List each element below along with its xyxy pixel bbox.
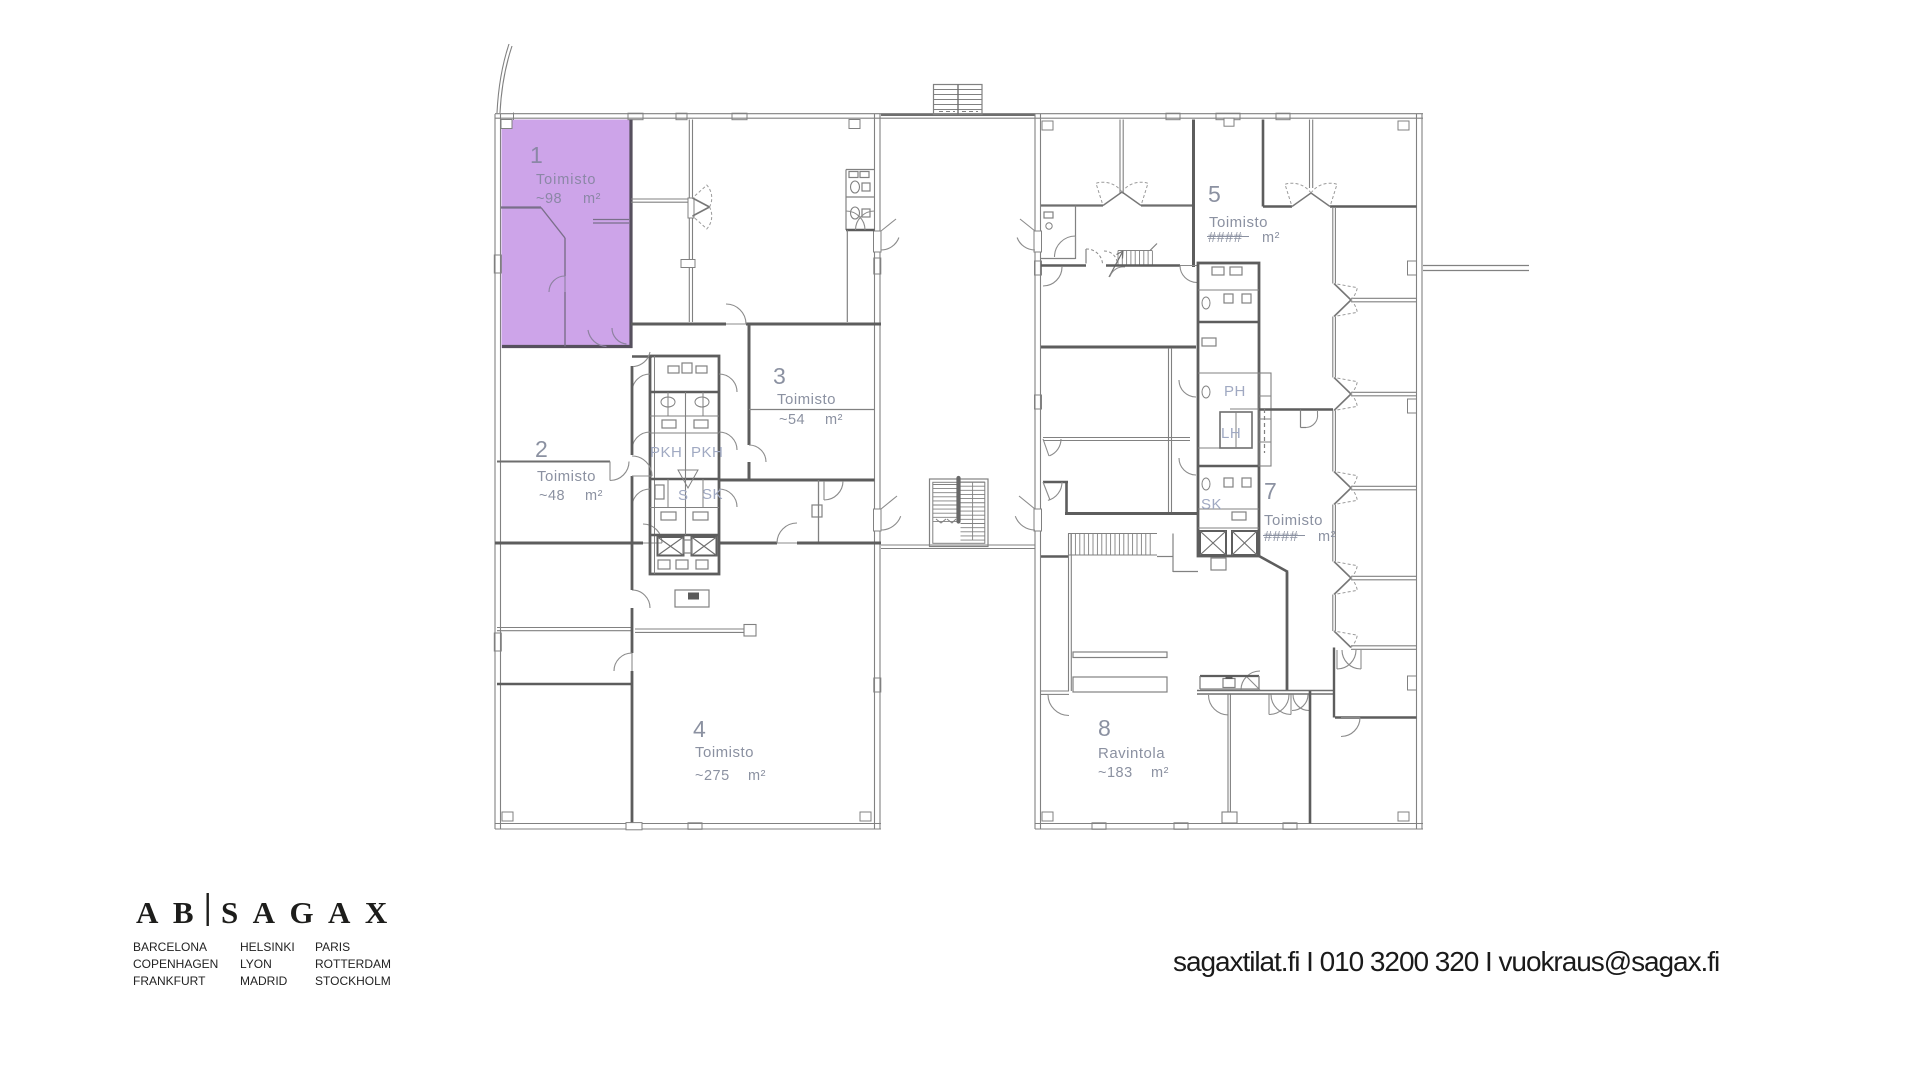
svg-text:sagaxtilat.fi I 010 3200 320 I: sagaxtilat.fi I 010 3200 320 I vuokraus@… (1173, 946, 1719, 977)
svg-text:####: #### (1264, 529, 1298, 545)
svg-text:~98: ~98 (536, 191, 562, 207)
svg-text:~54: ~54 (779, 412, 805, 428)
svg-text:COPENHAGEN: COPENHAGEN (133, 957, 218, 971)
svg-text:S: S (678, 487, 689, 504)
svg-text:~183: ~183 (1098, 765, 1133, 781)
svg-text:####: #### (1208, 230, 1242, 246)
svg-text:5: 5 (1208, 181, 1221, 207)
svg-text:LH: LH (1221, 425, 1241, 442)
svg-text:PKH: PKH (691, 444, 723, 461)
svg-text:HELSINKI: HELSINKI (240, 940, 295, 954)
svg-text:m²: m² (1318, 529, 1336, 545)
svg-text:m²: m² (585, 488, 603, 504)
svg-text:SK: SK (702, 486, 723, 503)
svg-text:Toimisto: Toimisto (1264, 512, 1323, 529)
svg-text:SK: SK (1201, 496, 1222, 513)
svg-text:A B: A B (136, 895, 198, 930)
svg-text:m²: m² (1151, 765, 1169, 781)
svg-text:MADRID: MADRID (240, 974, 288, 988)
svg-text:PKH: PKH (650, 444, 682, 461)
svg-text:PARIS: PARIS (315, 940, 350, 954)
svg-text:m²: m² (748, 768, 766, 784)
svg-text:4: 4 (693, 716, 706, 742)
svg-text:~275: ~275 (695, 768, 730, 784)
svg-text:FRANKFURT: FRANKFURT (133, 974, 206, 988)
svg-text:m²: m² (583, 191, 601, 207)
svg-text:7: 7 (1264, 478, 1277, 504)
svg-text:1: 1 (530, 142, 543, 168)
svg-text:~48: ~48 (539, 488, 565, 504)
svg-text:Toimisto: Toimisto (536, 172, 596, 188)
svg-text:PH: PH (1224, 383, 1246, 400)
svg-text:Toimisto: Toimisto (1209, 214, 1268, 231)
svg-text:m²: m² (1262, 230, 1280, 246)
svg-text:STOCKHOLM: STOCKHOLM (315, 974, 391, 988)
svg-text:2: 2 (535, 436, 548, 462)
svg-text:Toimisto: Toimisto (537, 468, 596, 485)
svg-text:S A G A X: S A G A X (221, 895, 391, 930)
svg-text:ROTTERDAM: ROTTERDAM (315, 957, 391, 971)
svg-text:LYON: LYON (240, 957, 272, 971)
svg-text:BARCELONA: BARCELONA (133, 940, 207, 954)
svg-text:Ravintola: Ravintola (1098, 745, 1165, 762)
svg-text:8: 8 (1098, 715, 1111, 741)
svg-text:Toimisto: Toimisto (777, 391, 836, 408)
svg-text:m²: m² (825, 412, 843, 428)
svg-text:3: 3 (773, 363, 786, 389)
svg-text:Toimisto: Toimisto (695, 744, 754, 761)
